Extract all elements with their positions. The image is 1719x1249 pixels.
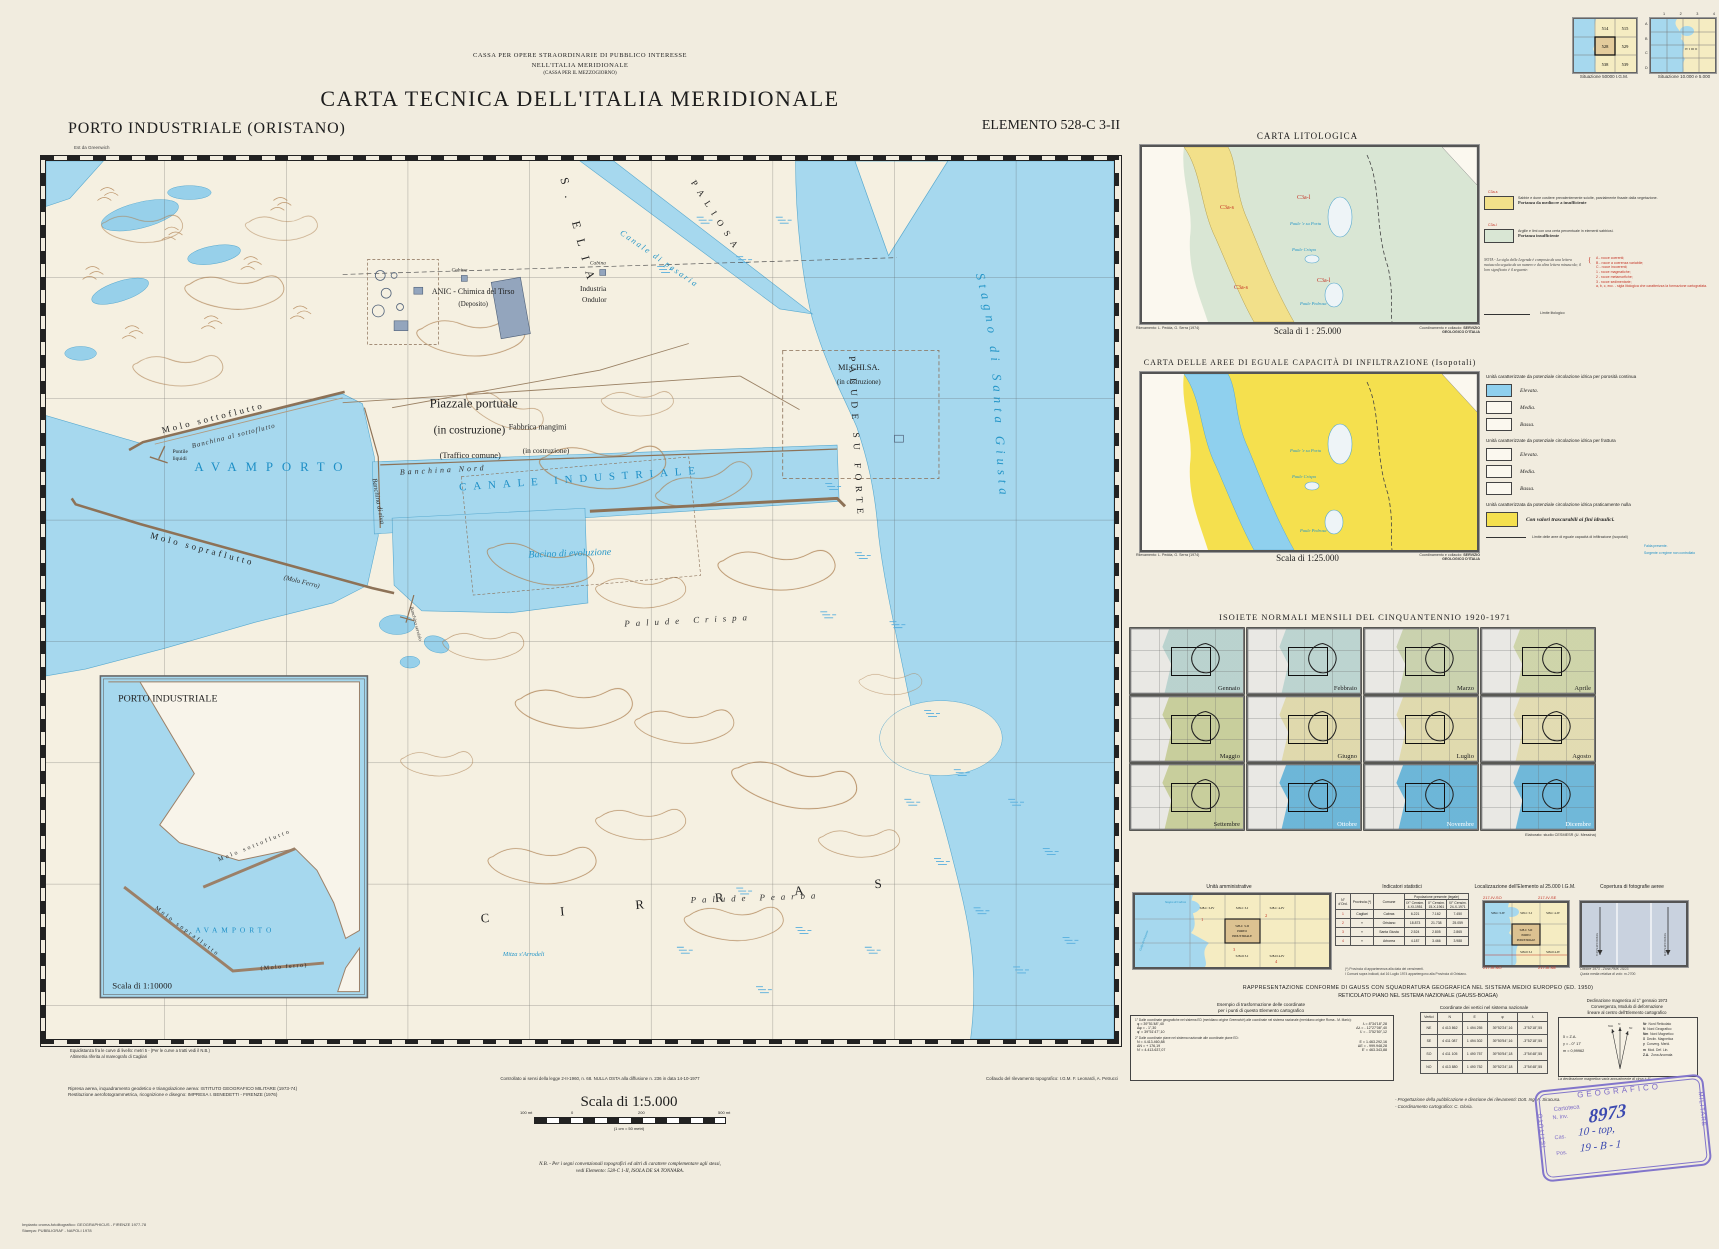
esempio-box: 1° Dalle coordinate geografiche nel sist… <box>1130 1015 1394 1081</box>
limite-label: Limite litologico <box>1540 311 1565 315</box>
inf-limite-line <box>1486 537 1526 538</box>
iso-maggio: Maggio <box>1130 696 1244 762</box>
loc-cell-tl: 528-C 3-IV <box>1491 911 1506 915</box>
admin-cell-center-1: PORTO <box>1237 929 1247 933</box>
element-code: ELEMENTO 528-C 3-II <box>870 118 1120 134</box>
map-sheet: CASSA PER OPERE STRAORDINARIE DI PUBBLIC… <box>0 0 1719 1249</box>
elevata-swatch <box>1486 384 1512 397</box>
loc-cell-br: 528-D 4-IV <box>1546 950 1561 954</box>
media-swatch <box>1486 401 1512 414</box>
elevata2-swatch <box>1486 448 1512 461</box>
stats-row: 2»Oristano18.87321.73825.059 <box>1336 919 1469 928</box>
col-4: 4 <box>1713 12 1715 16</box>
collaudo-note: Collaudo del rilevamento topografico: I.… <box>868 1076 1118 1081</box>
col-3: 3 <box>1696 12 1698 16</box>
label-piazzale-3: (Traffico comune) <box>440 451 501 460</box>
igm-cell-528: 528 <box>1602 44 1610 49</box>
publisher-line-3: (CASSA PER IL MEZZOGIORNO) <box>280 71 880 76</box>
stats-title: Indicatori statistici <box>1335 884 1469 890</box>
equidistanza-note-2: Altimetria riferita al mareografo di Cag… <box>70 1054 147 1059</box>
decl-box: δ = Z.A.γ = - 0° 17'm = 0,99962 N Nm Nr … <box>1558 1017 1698 1077</box>
litologica-map: C3a-l C3a-l C3a-s C3a-s Paule 'e su Port… <box>1140 145 1479 324</box>
lit-code-3: C3a-s <box>1220 205 1235 211</box>
loc-corner-tl: 217-IV-SO <box>1483 895 1502 900</box>
coord-title: Coordinate dei vertici nel sistema nazio… <box>1420 1005 1548 1010</box>
b2r3a: N' = 4.413.637,07 <box>1137 1048 1165 1052</box>
iso-gennaio: Gennaio <box>1130 628 1244 694</box>
loc-cell-center-1: PORTO <box>1522 934 1531 937</box>
stats-footnote-2: I Comuni sopra indicati, dal 16 Luglio 1… <box>1345 972 1467 976</box>
litologica-coordinamento: Coordinamento e collaudo: SERVIZIO GEOLO… <box>1400 326 1480 335</box>
decl-title-2: Convergenza, Modulo di deformazione <box>1558 1004 1696 1009</box>
loc-title: Localizzazione dell'Elemento al 25.000 I… <box>1470 884 1580 890</box>
infiltrazione-rilevamento: Rilevamento: L. Pedda, G. Serra (1974) <box>1136 553 1206 557</box>
elevata2-label: Elevata. <box>1520 452 1538 458</box>
stats-row: 1CagliariCabras6.2217.1627.450 <box>1336 910 1469 919</box>
b1r3a: φ' = 39°51'47",10 <box>1137 1030 1165 1034</box>
sabbie-text: Sabbie e dune costiere prevalentemente s… <box>1518 196 1706 206</box>
nb-note-2: vedi Elemento: 528-C 1-II, ISOLA DE SA T… <box>380 1169 880 1174</box>
nota-brace: { <box>1588 256 1591 264</box>
scale-title: Scala di 1:5.000 <box>529 1094 729 1111</box>
svg-text:Nr: Nr <box>1629 1026 1633 1030</box>
stats-row: 4»Arborea4.1873.4663.988 <box>1336 937 1469 946</box>
admin-cell-tl: 528-C 3-IV <box>1200 906 1215 910</box>
topographic-map: S. ELIA PALIOSA Canale di pesaria PALUDE… <box>46 161 1114 1039</box>
label-mitza: Mitza s'Arrodeli <box>502 951 545 958</box>
loc-cell-center-2: INDUSTRIALE <box>1517 939 1536 942</box>
loc-map: 528-C 3-IV 528-C 3-I 528-C 4-IV 528-C 3-… <box>1483 901 1569 967</box>
scale-right-label: 500 mt <box>718 1110 730 1115</box>
nb-note-1: N.B. - Per i segni convenzionali topogra… <box>380 1162 880 1167</box>
nulla-label: Con valori trascurabili ai fini idraulic… <box>1526 517 1615 523</box>
iso-febbraio: Febbraio <box>1247 628 1361 694</box>
decl-legend: Nr Nord Reticolato N Nord Geografico Nm … <box>1643 1022 1673 1058</box>
index-map-10000: IV I III II 1234 ABCD <box>1650 18 1716 73</box>
admin-stagno-cabras: Stagno di Cabras <box>1165 900 1187 904</box>
equidistanza-note-1: Equidistanza fra le curve di livello: me… <box>70 1048 210 1053</box>
index-map-50000: 514 515 528 529 538 539 <box>1573 18 1637 73</box>
admin-cell-tr: 528-C 4-IV <box>1270 906 1285 910</box>
label-michisa-1: MI.CHI.SA. <box>838 363 880 372</box>
limite-line <box>1484 314 1530 315</box>
map-frame-inner: S. ELIA PALIOSA Canale di pesaria PALUDE… <box>45 160 1115 1040</box>
greenwich-note: Est da Greenwich <box>74 145 110 150</box>
coord-h-e: E <box>1462 1013 1487 1022</box>
iso-marzo: Marzo <box>1364 628 1478 694</box>
label-cabina-2: Cabina <box>590 261 606 267</box>
lit-code-2: C3a-l <box>1317 278 1331 284</box>
inf-sec-3: Unità caratterizzata da potenziale circo… <box>1486 502 1714 507</box>
row-d: D <box>1645 66 1648 70</box>
quadrant-marks: IV I III II <box>1685 47 1699 51</box>
label-anic-1: ANIC - Chimica del Tirso <box>432 287 515 296</box>
inf-limite-label: Limite delle aree di eguale capacità di … <box>1532 535 1628 539</box>
tick-band-right <box>1115 156 1119 1044</box>
label-industria-2: Ondulor <box>582 295 607 304</box>
label-cabina-1: Cabina <box>451 267 467 273</box>
argille-swatch <box>1484 229 1514 243</box>
inset-title: PORTO INDUSTRIALE <box>118 694 217 705</box>
print-line-2: Stampa: PUBBLIGRAF - NAPOLI 1978 <box>22 1228 92 1233</box>
loc-corner-tr: 217-IV-SE <box>1538 895 1556 900</box>
b1r3b: λ' = - 3°52'50",12 <box>1360 1030 1387 1034</box>
iso-novembre: Novembre <box>1364 764 1478 830</box>
svg-text:N: N <box>1618 1022 1621 1026</box>
inf-blue-note-1: Falda presente. <box>1644 544 1668 548</box>
gauss-footnote-2: - Coordinamento cartografico: C. Gloria. <box>1395 1104 1473 1109</box>
decl-title-3: lineare al centro dell'Elemento cartogra… <box>1558 1010 1696 1015</box>
col-2: 2 <box>1680 12 1682 16</box>
iso-dicembre: Dicembre <box>1481 764 1595 830</box>
strip-label-1: STRISCIATA 69 A <box>1595 933 1599 957</box>
iso-settembre: Settembre <box>1130 764 1244 830</box>
litologica-codes: A - rocce coerenti;B - rocce a coerenza … <box>1596 256 1711 289</box>
admin-cell-br: 528-D 4-IV <box>1270 954 1286 958</box>
index-map-50000-caption: Situazione 50000 I.G.M. <box>1560 74 1648 79</box>
label-michisa-2: (in costruzione) <box>837 379 881 386</box>
col-provincia: Provincia (*) <box>1351 894 1374 910</box>
decl-values: δ = Z.A.γ = - 0° 17'm = 0,99962 <box>1563 1034 1584 1054</box>
litologica-scale: Scala di 1 : 25.000 <box>1225 326 1390 336</box>
gauss-title-1: RAPPRESENTAZIONE CONFORME DI GAUSS CON S… <box>1130 985 1706 991</box>
esempio-title-1: Esempio di trasformazione delle coordina… <box>1130 1002 1392 1007</box>
admin-title: Unità amministrative <box>1130 884 1328 890</box>
page-title: CARTA TECNICA DELL'ITALIA MERIDIONALE <box>180 86 980 112</box>
label-pontile-2: liquidi <box>173 456 188 462</box>
col-ord: N° d'Ord. <box>1336 894 1351 910</box>
lit-paule-1: Paule 'e su Portu <box>1289 221 1322 226</box>
coord-row-so: SO4 411 1051 490 75739°50'54",18-3°54'48… <box>1421 1048 1548 1061</box>
legend-code-sabbie: C3a-s <box>1488 190 1498 194</box>
publisher-line-2: NELL'ITALIA MERIDIONALE <box>280 62 880 69</box>
argille-text: Argille e limi con una certa percentuale… <box>1518 229 1706 239</box>
loc-cell-tm: 528-C 3-I <box>1520 911 1532 915</box>
scale-mid-label: 200 <box>638 1110 645 1115</box>
stats-footnote-1: (*) Provincia di appartenenza alla data … <box>1345 967 1424 971</box>
litologica-rilevamento: Rilevamento: L. Pedda, G. Serra (1974) <box>1136 326 1206 330</box>
bassa2-swatch <box>1486 482 1512 495</box>
igm-cell-539: 539 <box>1622 62 1630 67</box>
b2r3b: E' = 463.343,88 <box>1362 1048 1387 1052</box>
col-1: 1 <box>1663 12 1665 16</box>
coord-h-vertici: Vertici <box>1421 1013 1438 1022</box>
legend-code-argille: C3a-l <box>1488 223 1497 227</box>
isoiete-credit: Elaborato: studio CESMESR (U. Messina) <box>1440 833 1596 837</box>
igm-cell-538: 538 <box>1602 62 1610 67</box>
inf-paule-2: Paule Crispa <box>1291 474 1317 479</box>
svg-text:Nm: Nm <box>1608 1024 1613 1028</box>
photo-note-1: Ottobre 1973 - Zona RMK 15/23. <box>1580 967 1629 971</box>
nulla-osta-note: Controllato ai sensi della legge 2-II-19… <box>330 1076 870 1081</box>
index-map-10000-caption: Situazione 10.000 e 5.000 <box>1640 74 1719 79</box>
scale-zero-label: 0 <box>571 1110 573 1115</box>
label-fabbrica-1: Fabbrica mangimi <box>509 422 568 431</box>
iso-agosto: Agosto <box>1481 696 1595 762</box>
media2-label: Media. <box>1520 469 1535 475</box>
inf-paule-3: Paule Pedrosa <box>1299 528 1327 533</box>
inf-sec-2: Unità caratterizzate da potenziale circo… <box>1486 438 1714 443</box>
coord-row-no: NO4 413 8801 490 75239°52'24",18-3°54'48… <box>1421 1061 1548 1074</box>
lit-paule-2: Paule Crispa <box>1291 247 1317 252</box>
col-cens-1961: X° Censim. 15-X-1961 <box>1426 900 1447 910</box>
igm-cell-515: 515 <box>1622 26 1630 31</box>
admin-num-2: 2 <box>1265 913 1267 918</box>
coord-table: Vertici N E φ λ NE4 413 8621 494 25539°5… <box>1420 1012 1548 1074</box>
publisher-line-1: CASSA PER OPERE STRAORDINARIE DI PUBBLIC… <box>280 52 880 59</box>
credit-line-2: Restituzione aerofotogrammetrica, ricogn… <box>68 1092 277 1097</box>
scale-bar <box>534 1117 726 1124</box>
label-avamporto: AVAMPORTO <box>194 460 351 474</box>
coord-h-lambda: λ <box>1518 1013 1548 1022</box>
iso-giugno: Giugno <box>1247 696 1361 762</box>
stats-table: N° d'Ord. Provincia (*) Comune Popolazio… <box>1335 893 1469 946</box>
igm-cell-514: 514 <box>1602 26 1610 31</box>
library-stamp: GEOGRAFICO ISTITUTO MILITARE Cartoteca N… <box>1534 1073 1713 1182</box>
litologica-title: CARTA LITOLOGICA <box>1140 131 1475 141</box>
loc-cell-center-code: 528-C 3-II <box>1520 928 1533 932</box>
coord-row-ne: NE4 413 8621 494 25539°52'24",16-3°52'18… <box>1421 1022 1548 1035</box>
credit-line-1: Ripresa aerea, inquadramento geodetico e… <box>68 1086 297 1091</box>
scale-left-label: 100 mt <box>520 1110 532 1115</box>
coord-h-phi: φ <box>1487 1013 1518 1022</box>
row-b: B <box>1645 37 1648 41</box>
col-cens-1951: IX° Censim. 4-XI-1951 <box>1405 900 1426 910</box>
stats-row: 3»Santa Giusta2.5242.8052.865 <box>1336 928 1469 937</box>
strip-label-2: STRISCIATA 69 B <box>1663 933 1667 956</box>
infiltrazione-map: Paule 'e su Portu Paule Crispa Paule Ped… <box>1140 372 1479 552</box>
admin-cell-bm: 528-D 3-I <box>1236 954 1249 958</box>
admin-num-1: 1 <box>1201 917 1203 922</box>
iso-aprile: Aprile <box>1481 628 1595 694</box>
label-piazzale-2: (in costruzione) <box>434 424 506 436</box>
photo-note-2: Quota media relativa di volo: m 2700. <box>1580 972 1636 976</box>
admin-cell-center-code: 528-C 3-II <box>1235 924 1249 928</box>
infiltrazione-coordinamento: Coordinamento e collaudo: SERVIZIO GEOLO… <box>1400 553 1480 562</box>
iso-luglio: Luglio <box>1364 696 1478 762</box>
inset-map: PORTO INDUSTRIALE Molo sottoflutto AVAMP… <box>100 676 367 998</box>
inf-paule-1: Paule 'e su Portu <box>1289 448 1322 453</box>
inf-sec-1: Unità caratterizzate da potenziale circo… <box>1486 374 1714 379</box>
isoiete-title: ISOIETE NORMALI MENSILI DEL CINQUANTENNI… <box>1130 612 1600 622</box>
label-anic-2: (Deposito) <box>458 301 488 308</box>
photo-title: Copertura di fotografie aeree <box>1577 884 1687 890</box>
loc-corner-br: 217-III-NE <box>1538 965 1556 970</box>
decl-title-1: Declinazione magnetica al 1° gennaio 197… <box>1558 998 1696 1003</box>
media-label: Media. <box>1520 405 1535 411</box>
admin-cell-center-2: INDUSTRIALE <box>1232 934 1252 938</box>
label-pontile-1: Pontile <box>173 449 189 455</box>
bassa-swatch <box>1486 418 1512 431</box>
coord-row-se: SE4 411 0871 494 30239°50'54",16-3°52'18… <box>1421 1035 1548 1048</box>
loc-corner-bl: 217-III-NO <box>1483 965 1502 970</box>
nulla-swatch <box>1486 512 1518 527</box>
iso-ottobre: Ottobre <box>1247 764 1361 830</box>
label-fabbrica-2: (in costruzione) <box>523 446 570 455</box>
inset-avamporto: AVAMPORTO <box>195 925 275 934</box>
stamp-pos-label: Pos. <box>1556 1150 1568 1157</box>
igm-cell-529: 529 <box>1622 44 1630 49</box>
bassa-label: Bassa. <box>1520 422 1535 428</box>
infiltrazione-legend: Unità caratterizzate da potenziale circo… <box>1486 374 1714 539</box>
lit-code-4: C3a-s <box>1234 285 1249 291</box>
infiltrazione-scale: Scala di 1:25.000 <box>1225 553 1390 563</box>
declination-diagram: N Nm Nr <box>1603 1021 1637 1071</box>
inset-scale: Scala di 1:10000 <box>112 981 172 991</box>
elevata-label: Elevata. <box>1520 388 1538 394</box>
loc-cell-tr: 528-C 4-IV <box>1546 911 1561 915</box>
col-comune: Comune <box>1374 894 1405 910</box>
esempio-title-2: per i punti di questo Elemento cartograf… <box>1130 1008 1392 1013</box>
coord-h-n: N <box>1437 1013 1462 1022</box>
loc-cell-bm: 528-D 3-I <box>1520 950 1532 954</box>
print-line-1: Impianto croma-fotolitografico: GEOGRAPH… <box>22 1222 146 1227</box>
admin-map: 528-C 3-IV 528-C 3-I 528-C 4-IV 528-C 3-… <box>1133 893 1331 969</box>
label-industria-1: Industria <box>580 284 607 293</box>
label-piazzale-1: Piazzale portuale <box>430 397 518 411</box>
litologica-nota: NOTA - La sigla della Legenda è composta… <box>1484 258 1584 273</box>
lit-paule-3: Paule Pedrosa <box>1299 301 1327 306</box>
inf-blue-note-2: Sorgente o regime non controllato <box>1644 551 1695 555</box>
photo-map: STRISCIATA 69 A STRISCIATA 69 B <box>1580 901 1688 967</box>
infiltrazione-title: CARTA DELLE AREE DI EGUALE CAPACITÀ DI I… <box>1130 358 1490 367</box>
stamp-cas-label: Cas. <box>1554 1134 1566 1141</box>
col-cens-1971: XI° Censim. 24-X-1971 <box>1447 900 1469 910</box>
media2-swatch <box>1486 465 1512 478</box>
scale-sub-caption: (1 cm = 50 metri) <box>564 1126 694 1131</box>
bassa2-label: Bassa. <box>1520 486 1535 492</box>
row-c: C <box>1645 51 1648 55</box>
sheet-name: PORTO INDUSTRIALE (ORISTANO) <box>68 120 346 138</box>
row-a: A <box>1645 22 1648 26</box>
lit-code-1: C3a-l <box>1297 195 1311 201</box>
sabbie-swatch <box>1484 196 1514 210</box>
admin-cell-tm: 528-C 3-I <box>1236 906 1248 910</box>
